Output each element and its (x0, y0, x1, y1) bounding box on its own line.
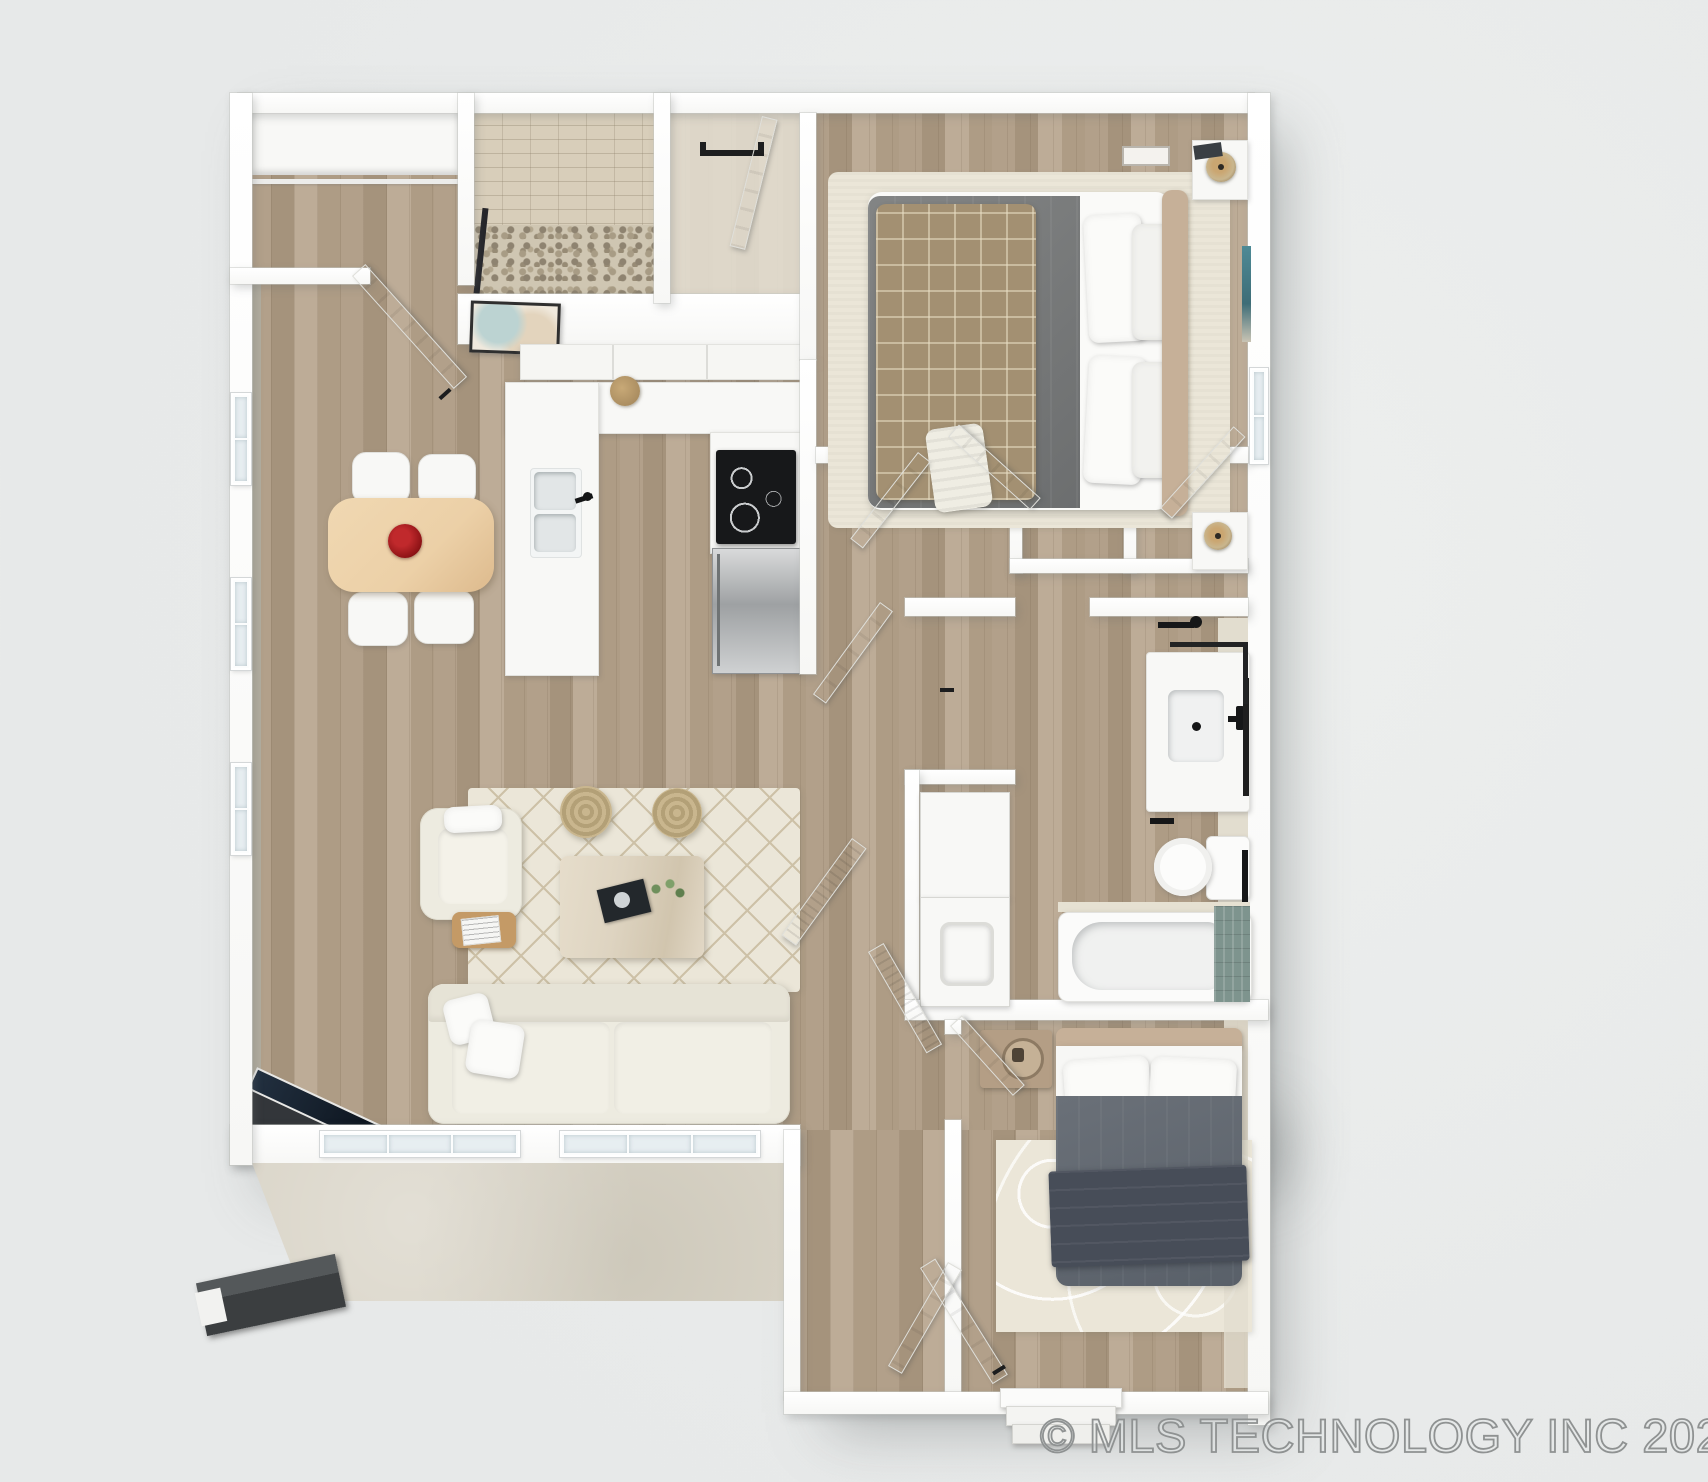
closet-rod (252, 179, 458, 184)
dining-chair-4 (414, 590, 474, 644)
window-pane (693, 1135, 756, 1153)
left-window-1 (231, 393, 251, 485)
window-pane (564, 1135, 627, 1153)
toilet-bowl (1154, 838, 1212, 896)
left-window-3 (231, 763, 251, 855)
sofa-pillow-2 (464, 1018, 526, 1080)
counter-wood-board (610, 376, 640, 406)
wall-closet-divider (458, 93, 474, 285)
anteroom-floor (670, 113, 800, 303)
refrigerator (712, 548, 802, 674)
window-pane (324, 1135, 387, 1153)
bedroom1-frame-top-wall (1122, 146, 1170, 166)
entry-step-1 (1000, 1388, 1122, 1408)
shower-pebble-floor (474, 225, 654, 300)
pouf-2 (652, 788, 702, 838)
bedroom1-wall-art (1242, 246, 1251, 342)
wall-bedroom1-left (800, 113, 816, 360)
wall-laundry-left (905, 770, 919, 1010)
floor-plan-render: © MLS TECHNOLOGY INC 2026 (0, 0, 1708, 1482)
wall-laundry-top (905, 770, 1015, 784)
entry-closet-shelf (252, 111, 458, 175)
window-pane (1254, 372, 1264, 415)
armchair-cushion (438, 828, 508, 904)
tub-tile-surround (1214, 906, 1250, 1002)
bed2-throw (1048, 1165, 1249, 1268)
side-table-magazine (461, 915, 502, 946)
kitchen-upper-cabinets (520, 344, 802, 380)
window-pane (235, 625, 247, 666)
kitchen-faucet-base (583, 492, 592, 501)
window-pane (389, 1135, 452, 1153)
living-window-2 (560, 1131, 760, 1157)
bed1-headboard (1162, 190, 1188, 516)
wall-hall-left (784, 1130, 800, 1400)
coffee-table-greenery (648, 876, 688, 902)
window-pane (453, 1135, 516, 1153)
pouf-1 (560, 786, 612, 838)
watermark-text: © MLS TECHNOLOGY INC 2026 (1040, 1408, 1708, 1463)
window-pane (235, 440, 247, 481)
left-window-2 (231, 578, 251, 670)
left-wall-paint-face (252, 284, 261, 1129)
bed2-nightstand-item (1012, 1048, 1024, 1062)
refrigerator-handle (717, 554, 720, 666)
living-window-1 (320, 1131, 520, 1157)
shower-tile-wall (474, 111, 654, 225)
wall-kitchen-right (800, 360, 816, 674)
wall-entry-stub (230, 268, 370, 284)
armchair-headrest (443, 805, 502, 834)
wall-shower-right (654, 93, 670, 303)
dryer-door-ring (940, 922, 994, 986)
dining-chair-1 (352, 452, 410, 504)
wall-bed2-left-lower (945, 1120, 961, 1392)
table-flower-centerpiece (388, 524, 422, 558)
wall-top (238, 93, 1254, 113)
bathtub-basin (1072, 922, 1220, 990)
shower-head-bar (1158, 622, 1194, 628)
cooktop (716, 450, 796, 544)
sofa-seat-right (614, 1022, 772, 1114)
bathroom-door-handle (940, 688, 954, 692)
bed2-headboard (1056, 1028, 1242, 1048)
window-pane (235, 397, 247, 438)
wall-bath-top-right (1090, 598, 1248, 616)
vanity-drain (1192, 722, 1201, 731)
washer (920, 792, 1010, 899)
window-pane (235, 582, 247, 623)
window-pane (235, 767, 247, 808)
window-pane (1254, 417, 1264, 460)
toilet-paper-holder (1150, 818, 1174, 824)
shower-glass-h (1170, 642, 1248, 647)
bed1-lamp-bottom (1204, 522, 1232, 550)
shower-glass-v (1243, 642, 1248, 704)
kitchen-sink-basin-top (534, 472, 576, 510)
shower-head (1190, 616, 1202, 628)
window-pane (235, 810, 247, 851)
wall-bath-top-left (905, 598, 1015, 616)
window-pane (629, 1135, 692, 1153)
dining-chair-3 (348, 592, 408, 646)
bedroom1-window (1250, 368, 1268, 464)
towel-bar-post-left (700, 142, 706, 152)
kitchen-sink-basin-bottom (534, 514, 576, 552)
